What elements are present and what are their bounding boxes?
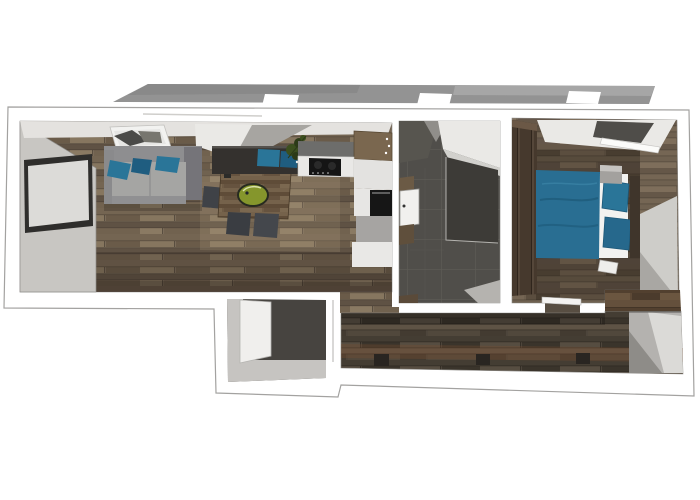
living-passage-floor	[340, 292, 399, 313]
sofa-pillow-teal-3	[155, 156, 180, 173]
sideboard-bench	[212, 146, 299, 174]
cooktop-control-3	[322, 172, 324, 174]
floor-plan-svg	[0, 0, 700, 500]
bathroom	[399, 121, 500, 303]
sofa-shadow	[104, 204, 202, 211]
bowl-berry	[245, 191, 248, 194]
sofa-front-edge	[112, 196, 186, 204]
dining-chair-bottom-1	[226, 212, 251, 236]
cabinet-knob-1	[386, 138, 388, 140]
bathroom-door-handle	[403, 205, 406, 208]
kitchen-oven	[370, 190, 392, 216]
cooktop-burner-2	[328, 162, 336, 170]
cooktop	[309, 158, 341, 176]
apartment	[4, 107, 694, 397]
bed-pillow-2	[603, 217, 631, 250]
dining-chair-bottom-2	[253, 213, 279, 238]
canopy-skylight-2	[417, 93, 452, 106]
entry-door-leaf	[240, 300, 271, 363]
sofa-pillow-teal-2	[131, 158, 152, 175]
living-room-kitchen	[20, 114, 399, 313]
bedroom-wardrobe	[512, 120, 537, 296]
bed-headboard	[630, 176, 640, 258]
hallway-niche-sideboard	[605, 290, 681, 311]
bench-cushion-1	[257, 149, 280, 167]
canopy-skylight-1	[262, 94, 299, 107]
sofa-armrest-right	[184, 147, 202, 200]
nightstand-top	[600, 165, 622, 172]
bed-pillow-1	[602, 180, 629, 212]
kitchen-counter-column-3	[356, 216, 392, 242]
bathroom-shelf-bottom	[399, 224, 414, 245]
cooktop-control-2	[317, 172, 319, 174]
cooktop-burner-1	[314, 161, 322, 169]
left-wall-window-panel	[28, 160, 89, 227]
canopy-skylight-3	[566, 91, 601, 104]
kitchen-tall-cabinet	[354, 131, 392, 161]
kitchen-upper-cabinets	[298, 141, 356, 158]
entry-vestibule	[227, 299, 333, 382]
bench-top-edge	[212, 146, 299, 148]
cabinet-knob-2	[388, 145, 390, 147]
bedroom	[512, 118, 679, 313]
canopy-band-light	[453, 86, 655, 96]
cooktop-control-1	[312, 172, 314, 174]
kitchen-counter-column-1	[354, 159, 392, 190]
kitchen-counter-column-4	[352, 242, 392, 267]
shower-area	[446, 157, 498, 243]
roof-canopy	[113, 84, 655, 107]
cooktop-control-4	[327, 172, 329, 174]
floor-plan-render	[0, 0, 700, 500]
bathroom-door	[400, 189, 419, 227]
door-mat-2	[476, 354, 490, 365]
door-mat-1	[374, 354, 389, 366]
hallway-wardrobe	[629, 312, 683, 373]
door-mat-3	[576, 353, 590, 364]
cabinet-knob-3	[385, 152, 387, 154]
hallway-top-shadow	[341, 313, 605, 325]
table-item-dark	[224, 174, 231, 178]
